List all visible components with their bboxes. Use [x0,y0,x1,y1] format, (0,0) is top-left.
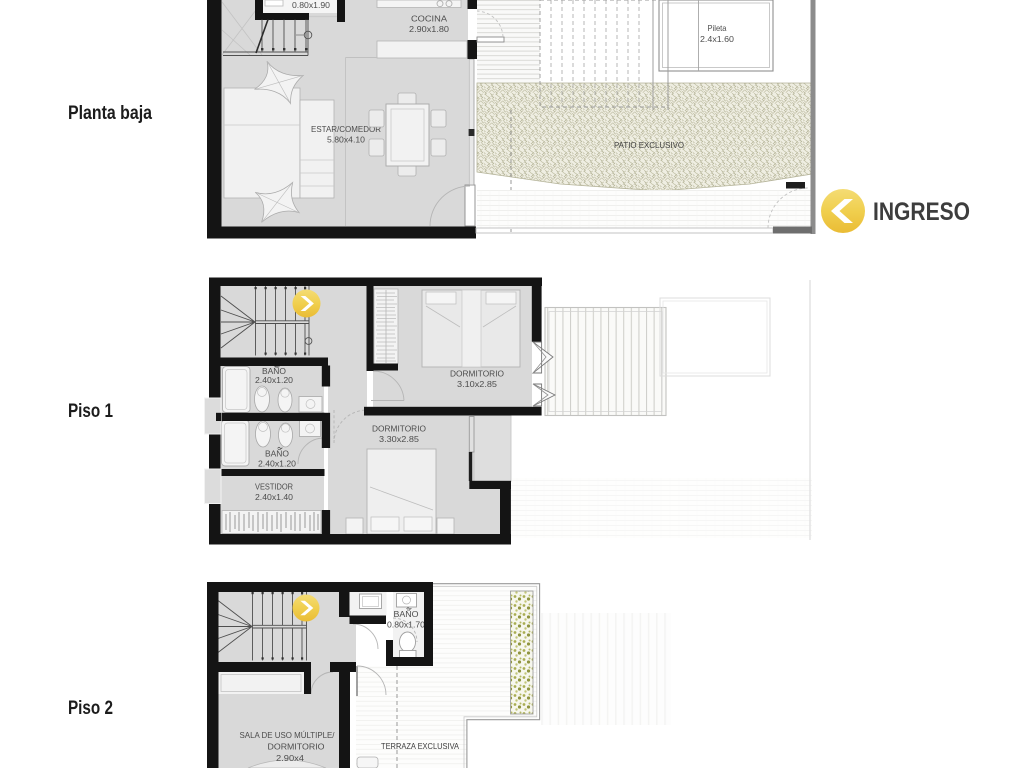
svg-text:DORMITORIO: DORMITORIO [372,424,426,434]
svg-text:BAÑO: BAÑO [394,609,419,619]
svg-text:2.40x1.20: 2.40x1.20 [258,459,296,469]
svg-text:Planta baja: Planta baja [68,102,152,124]
svg-text:2.90x4: 2.90x4 [276,753,304,763]
svg-text:5.80x4.10: 5.80x4.10 [327,135,365,145]
svg-text:DORMITORIO: DORMITORIO [268,742,325,752]
svg-text:2.90x1.80: 2.90x1.80 [409,24,449,34]
svg-text:INGRESO: INGRESO [873,198,970,226]
svg-text:2.40x1.40: 2.40x1.40 [255,492,293,502]
svg-text:Piso 1: Piso 1 [68,400,113,422]
svg-text:Piso 2: Piso 2 [68,697,113,719]
svg-text:0.80x1.70: 0.80x1.70 [387,620,425,630]
svg-text:3.30x2.85: 3.30x2.85 [379,434,419,444]
svg-text:TERRAZA EXCLUSIVA: TERRAZA EXCLUSIVA [381,741,459,751]
svg-text:PATIO EXCLUSIVO: PATIO EXCLUSIVO [614,140,684,150]
svg-text:2.40x1.20: 2.40x1.20 [255,375,293,385]
svg-text:SALA DE USO MÚLTIPLE/: SALA DE USO MÚLTIPLE/ [240,730,336,740]
svg-text:Pileta: Pileta [708,24,727,33]
svg-text:BAÑO: BAÑO [265,449,289,459]
svg-text:0.80x1.90: 0.80x1.90 [292,1,330,10]
svg-text:2.4x1.60: 2.4x1.60 [700,35,735,44]
svg-text:COCINA: COCINA [411,14,447,24]
svg-text:DORMITORIO: DORMITORIO [450,369,504,379]
svg-text:3.10x2.85: 3.10x2.85 [457,379,497,389]
svg-text:VESTIDOR: VESTIDOR [255,482,293,492]
